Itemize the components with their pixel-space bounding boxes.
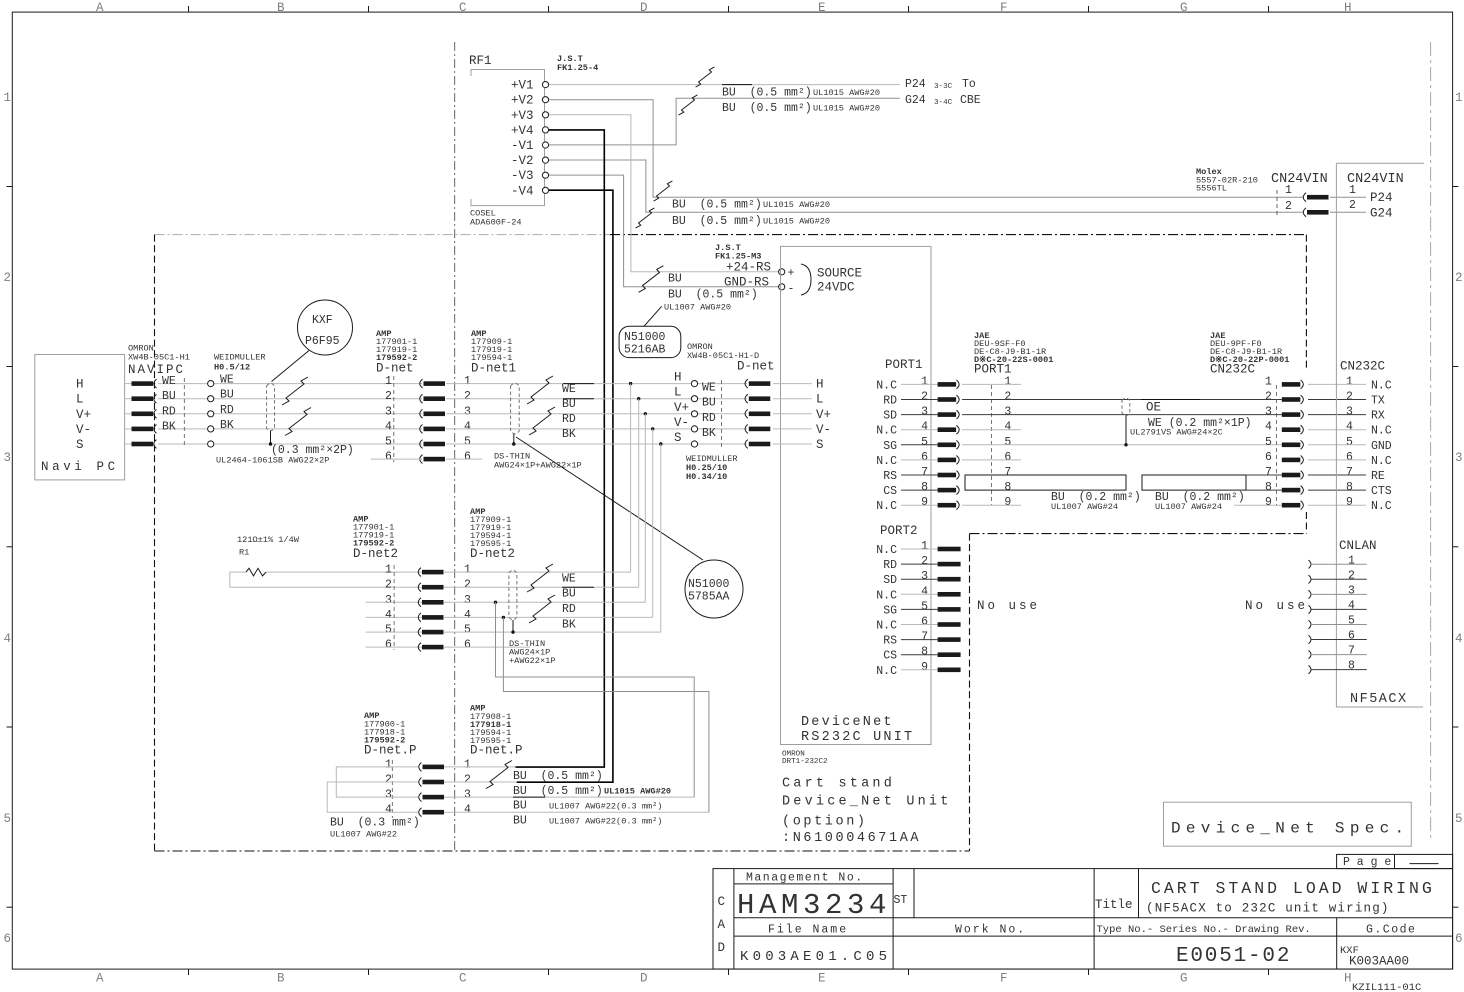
svg-text:BU (0.5 mm²): BU (0.5 mm²) bbox=[722, 102, 812, 115]
svg-text:5: 5 bbox=[464, 624, 471, 637]
svg-text:1: 1 bbox=[921, 540, 928, 553]
svg-text:3: 3 bbox=[464, 405, 471, 418]
svg-text:N.C: N.C bbox=[876, 665, 897, 678]
svg-text:1: 1 bbox=[1346, 375, 1353, 388]
svg-text:N.C: N.C bbox=[876, 379, 897, 392]
svg-text:5: 5 bbox=[1004, 436, 1011, 449]
svg-text:4: 4 bbox=[921, 421, 928, 434]
svg-text:6: 6 bbox=[921, 451, 928, 464]
svg-text:N.C: N.C bbox=[876, 620, 897, 633]
svg-text:Device_Net Unit: Device_Net Unit bbox=[782, 795, 952, 810]
svg-text:BU (0.5 mm²): BU (0.5 mm²) bbox=[672, 199, 762, 212]
svg-text:1: 1 bbox=[4, 91, 12, 105]
svg-text:N.C: N.C bbox=[1371, 455, 1392, 468]
svg-text:6: 6 bbox=[1455, 932, 1463, 946]
svg-text:UL1007 AWG#22: UL1007 AWG#22 bbox=[330, 830, 397, 840]
svg-text:L: L bbox=[816, 393, 824, 407]
svg-text:(option): (option) bbox=[782, 815, 868, 830]
svg-text:DeviceNet: DeviceNet bbox=[801, 715, 894, 730]
svg-text:(NF5ACX to 232C unit wiring): (NF5ACX to 232C unit wiring) bbox=[1146, 902, 1390, 916]
svg-text:D: D bbox=[640, 1, 648, 15]
svg-text:1: 1 bbox=[385, 758, 392, 771]
svg-text:3: 3 bbox=[4, 451, 12, 465]
svg-text:+V4: +V4 bbox=[511, 124, 534, 138]
svg-text:V+: V+ bbox=[674, 401, 689, 415]
svg-text:E: E bbox=[818, 1, 826, 15]
svg-text:4: 4 bbox=[1455, 632, 1463, 646]
svg-text:1: 1 bbox=[1349, 184, 1356, 197]
svg-text:UL1015 AWG#20: UL1015 AWG#20 bbox=[813, 88, 880, 98]
svg-text:6: 6 bbox=[464, 639, 471, 652]
svg-text:SOURCE: SOURCE bbox=[817, 267, 862, 281]
svg-text:A: A bbox=[96, 972, 104, 986]
svg-text:2: 2 bbox=[464, 774, 471, 787]
svg-text:WE: WE bbox=[562, 573, 576, 586]
svg-text:1: 1 bbox=[385, 564, 392, 577]
svg-text:4: 4 bbox=[1004, 421, 1011, 434]
svg-text:V-: V- bbox=[816, 423, 831, 437]
svg-text:5556TL: 5556TL bbox=[1196, 184, 1227, 194]
svg-text:2: 2 bbox=[385, 579, 392, 592]
svg-text:C: C bbox=[459, 972, 467, 986]
svg-text:2: 2 bbox=[921, 555, 928, 568]
svg-text:N.C: N.C bbox=[876, 500, 897, 513]
svg-text:WE: WE bbox=[562, 383, 576, 396]
svg-text:7: 7 bbox=[1348, 645, 1355, 658]
svg-text:BU: BU bbox=[702, 397, 716, 410]
svg-text:L: L bbox=[76, 393, 84, 407]
svg-text:N.C: N.C bbox=[876, 455, 897, 468]
svg-text:8: 8 bbox=[921, 646, 928, 659]
svg-text:2: 2 bbox=[385, 390, 392, 403]
svg-text:BU: BU bbox=[162, 390, 176, 403]
svg-text:CART STAND LOAD WIRING: CART STAND LOAD WIRING bbox=[1151, 879, 1435, 898]
svg-text:6: 6 bbox=[464, 451, 471, 464]
svg-text:Navi PC: Navi PC bbox=[41, 460, 119, 474]
svg-text:CNLAN: CNLAN bbox=[1339, 539, 1377, 553]
svg-text:RS: RS bbox=[883, 470, 897, 483]
svg-text:CN232C: CN232C bbox=[1340, 360, 1385, 374]
svg-text:UL2791VS AWG#24×2C: UL2791VS AWG#24×2C bbox=[1130, 428, 1223, 438]
svg-text:D: D bbox=[640, 972, 648, 986]
svg-text:WE: WE bbox=[702, 382, 716, 395]
svg-text:A: A bbox=[718, 918, 726, 932]
svg-text:NF5ACX: NF5ACX bbox=[1350, 692, 1408, 707]
svg-text:-V3: -V3 bbox=[511, 169, 534, 183]
svg-text:L: L bbox=[674, 386, 682, 400]
svg-text:2: 2 bbox=[464, 390, 471, 403]
svg-text:-V4: -V4 bbox=[511, 184, 534, 198]
svg-text:N51000: N51000 bbox=[688, 578, 730, 591]
svg-text:To: To bbox=[962, 78, 976, 91]
svg-text:3: 3 bbox=[1265, 406, 1272, 419]
svg-text:9: 9 bbox=[921, 661, 928, 674]
svg-text:1: 1 bbox=[1004, 375, 1011, 388]
svg-text:BU (0.5 mm²): BU (0.5 mm²) bbox=[513, 785, 603, 798]
svg-text:9: 9 bbox=[921, 496, 928, 509]
svg-text:6: 6 bbox=[1346, 451, 1353, 464]
svg-text:RD: RD bbox=[883, 395, 897, 408]
svg-text:SD: SD bbox=[883, 574, 897, 587]
svg-text:BK: BK bbox=[220, 419, 234, 432]
svg-text:E0051-02: E0051-02 bbox=[1176, 945, 1291, 968]
svg-text:UL1015 AWG#20: UL1015 AWG#20 bbox=[813, 104, 880, 114]
svg-text:6: 6 bbox=[4, 932, 12, 946]
svg-text:1: 1 bbox=[1455, 91, 1463, 105]
svg-text:5: 5 bbox=[921, 600, 928, 613]
svg-text:H0.34/10: H0.34/10 bbox=[686, 472, 727, 482]
svg-text:+V1: +V1 bbox=[511, 79, 534, 93]
svg-text:8: 8 bbox=[1265, 481, 1272, 494]
svg-text:S: S bbox=[816, 438, 824, 452]
svg-text:D-net.P: D-net.P bbox=[470, 744, 523, 758]
svg-text:G: G bbox=[1180, 972, 1188, 986]
svg-text:RX: RX bbox=[1371, 410, 1385, 423]
svg-text:5: 5 bbox=[1348, 615, 1355, 628]
svg-text:Device_Net Spec.: Device_Net Spec. bbox=[1171, 820, 1409, 838]
svg-text:121Ω±1% 1/4W: 121Ω±1% 1/4W bbox=[237, 535, 300, 545]
svg-text:7: 7 bbox=[1265, 466, 1272, 479]
svg-text:5: 5 bbox=[385, 436, 392, 449]
svg-text:7: 7 bbox=[1004, 466, 1011, 479]
svg-text:F: F bbox=[1000, 1, 1008, 15]
svg-text:BK: BK bbox=[702, 427, 716, 440]
svg-text:2: 2 bbox=[1455, 271, 1463, 285]
svg-text:6: 6 bbox=[1265, 451, 1272, 464]
svg-text:C: C bbox=[718, 895, 726, 909]
svg-text:UL1007 AWG#22(0.3 mm²): UL1007 AWG#22(0.3 mm²) bbox=[549, 817, 662, 827]
svg-text:1: 1 bbox=[1265, 375, 1272, 388]
svg-text:G24: G24 bbox=[1370, 207, 1393, 221]
svg-text:5216AB: 5216AB bbox=[624, 344, 666, 357]
svg-text:3: 3 bbox=[1346, 406, 1353, 419]
svg-text:E: E bbox=[818, 972, 826, 986]
svg-text:BU: BU bbox=[513, 800, 527, 813]
svg-text:RD: RD bbox=[883, 559, 897, 572]
svg-text:2: 2 bbox=[464, 579, 471, 592]
svg-text:1: 1 bbox=[385, 375, 392, 388]
svg-text:3: 3 bbox=[385, 594, 392, 607]
svg-text:2: 2 bbox=[385, 774, 392, 787]
svg-text:RD: RD bbox=[220, 404, 234, 417]
svg-text:3-3C: 3-3C bbox=[934, 83, 953, 91]
svg-text:4: 4 bbox=[385, 609, 392, 622]
svg-text:Title: Title bbox=[1095, 898, 1133, 912]
svg-text:Management No.: Management No. bbox=[746, 872, 864, 885]
svg-text:N.C: N.C bbox=[876, 544, 897, 557]
svg-text:BU: BU bbox=[220, 389, 234, 402]
svg-text:D-net2: D-net2 bbox=[353, 547, 398, 561]
svg-text:P a g e: P a g e bbox=[1343, 856, 1391, 869]
svg-text:CS: CS bbox=[883, 485, 897, 498]
svg-text:BK: BK bbox=[562, 619, 576, 632]
svg-text:N51000: N51000 bbox=[624, 331, 666, 344]
svg-text:+V2: +V2 bbox=[511, 94, 534, 108]
svg-text:BU (0.3 mm²): BU (0.3 mm²) bbox=[330, 817, 420, 830]
svg-text:FK1.25-4: FK1.25-4 bbox=[557, 63, 598, 73]
svg-text:+24-RS: +24-RS bbox=[726, 261, 771, 275]
svg-text:ST: ST bbox=[894, 894, 908, 907]
svg-text:UL1007 AWG#22(0.3 mm²): UL1007 AWG#22(0.3 mm²) bbox=[549, 802, 662, 812]
svg-text:H: H bbox=[1344, 972, 1352, 986]
svg-text:24VDC: 24VDC bbox=[817, 281, 855, 295]
svg-text:ADA600F-24: ADA600F-24 bbox=[470, 218, 522, 228]
svg-text:UL1015 AWG#20: UL1015 AWG#20 bbox=[604, 786, 671, 796]
svg-text:3: 3 bbox=[385, 789, 392, 802]
svg-text:3: 3 bbox=[385, 405, 392, 418]
svg-text:RD: RD bbox=[562, 413, 576, 426]
svg-text:D-net1: D-net1 bbox=[471, 362, 516, 376]
svg-text:1: 1 bbox=[921, 375, 928, 388]
svg-text:N.C: N.C bbox=[1371, 500, 1392, 513]
svg-text:RF1: RF1 bbox=[469, 54, 492, 68]
svg-text:1: 1 bbox=[1348, 554, 1355, 567]
svg-text:WE: WE bbox=[162, 375, 176, 388]
svg-text:BU: BU bbox=[562, 398, 576, 411]
svg-text:Cart stand: Cart stand bbox=[782, 777, 895, 792]
svg-text:4: 4 bbox=[385, 420, 392, 433]
svg-text:6: 6 bbox=[921, 616, 928, 629]
svg-text:OE: OE bbox=[1146, 401, 1161, 415]
svg-text:6: 6 bbox=[1004, 451, 1011, 464]
svg-text:8: 8 bbox=[1004, 481, 1011, 494]
svg-text:K003AE01.C05: K003AE01.C05 bbox=[740, 949, 891, 965]
svg-text:D-net.P: D-net.P bbox=[364, 744, 417, 758]
svg-text:PORT1: PORT1 bbox=[974, 363, 1012, 377]
svg-text:2: 2 bbox=[1349, 199, 1356, 212]
svg-text:7: 7 bbox=[1346, 466, 1353, 479]
svg-text:H: H bbox=[1344, 1, 1352, 15]
svg-text:No use: No use bbox=[1245, 599, 1308, 613]
svg-text:BU (0.5 mm²): BU (0.5 mm²) bbox=[513, 770, 603, 783]
svg-text:Work No.: Work No. bbox=[955, 924, 1026, 937]
svg-text:BU (0.5 mm²): BU (0.5 mm²) bbox=[722, 87, 812, 100]
svg-text:CN24VIN: CN24VIN bbox=[1271, 172, 1328, 187]
svg-text:Type No.- Series No.- Drawing: Type No.- Series No.- Drawing Rev. bbox=[1097, 924, 1311, 936]
svg-text:WEIDMULLER: WEIDMULLER bbox=[214, 353, 266, 363]
svg-text:D-net2: D-net2 bbox=[470, 547, 515, 561]
svg-text:H: H bbox=[674, 371, 682, 385]
svg-text:2: 2 bbox=[1265, 391, 1272, 404]
svg-text:2: 2 bbox=[1004, 391, 1011, 404]
svg-text:5785AA: 5785AA bbox=[688, 591, 730, 604]
svg-text:NAVIPC: NAVIPC bbox=[128, 363, 185, 377]
svg-text:1: 1 bbox=[464, 758, 471, 771]
svg-text:UL1015 AWG#20: UL1015 AWG#20 bbox=[763, 200, 830, 210]
svg-text:V-: V- bbox=[76, 423, 91, 437]
svg-text:6: 6 bbox=[1348, 630, 1355, 643]
svg-text:GND-RS: GND-RS bbox=[724, 276, 769, 290]
svg-text:H: H bbox=[816, 378, 824, 392]
svg-text:4: 4 bbox=[4, 632, 12, 646]
svg-text:RD: RD bbox=[162, 405, 176, 418]
svg-text:H0.5/12: H0.5/12 bbox=[214, 363, 250, 373]
svg-text:SD: SD bbox=[883, 410, 897, 423]
svg-text:3: 3 bbox=[1455, 451, 1463, 465]
svg-text:2: 2 bbox=[1285, 200, 1292, 213]
svg-text:6: 6 bbox=[385, 451, 392, 464]
svg-text:N.C: N.C bbox=[876, 425, 897, 438]
svg-text:3: 3 bbox=[464, 594, 471, 607]
svg-text:9: 9 bbox=[1346, 496, 1353, 509]
svg-text:3: 3 bbox=[1348, 584, 1355, 597]
svg-text:P24: P24 bbox=[905, 78, 926, 91]
svg-text:UL1007 AWG#20: UL1007 AWG#20 bbox=[664, 303, 731, 313]
svg-text:B: B bbox=[277, 1, 285, 15]
svg-text:9: 9 bbox=[1004, 496, 1011, 509]
svg-text:-V2: -V2 bbox=[511, 154, 534, 168]
svg-text:+: + bbox=[788, 267, 795, 280]
svg-text:BU: BU bbox=[668, 273, 682, 286]
svg-text:SG: SG bbox=[883, 440, 897, 453]
svg-text:XW4B-05C1-H1: XW4B-05C1-H1 bbox=[128, 353, 190, 363]
svg-text:V+: V+ bbox=[816, 408, 831, 422]
svg-text:5: 5 bbox=[1455, 812, 1463, 826]
svg-text:RS: RS bbox=[883, 635, 897, 648]
svg-text:7: 7 bbox=[921, 631, 928, 644]
svg-text:V-: V- bbox=[674, 416, 689, 430]
svg-text:1: 1 bbox=[1285, 184, 1292, 197]
svg-text:5: 5 bbox=[1346, 436, 1353, 449]
svg-text:6: 6 bbox=[385, 639, 392, 652]
svg-text:A: A bbox=[96, 1, 104, 15]
svg-text:BK: BK bbox=[562, 428, 576, 441]
svg-text:UL1015 AWG#20: UL1015 AWG#20 bbox=[763, 217, 830, 227]
svg-text:CS: CS bbox=[883, 650, 897, 663]
svg-text:R1: R1 bbox=[239, 548, 249, 558]
svg-text:File Name: File Name bbox=[768, 924, 848, 937]
svg-text::N610004671AA: :N610004671AA bbox=[782, 831, 921, 846]
svg-text:BU (0.5 mm²): BU (0.5 mm²) bbox=[672, 215, 762, 228]
svg-text:G24: G24 bbox=[905, 94, 926, 107]
svg-text:CTS: CTS bbox=[1371, 485, 1392, 498]
svg-text:N.C: N.C bbox=[876, 589, 897, 602]
svg-text:8: 8 bbox=[1348, 660, 1355, 673]
svg-text:WE: WE bbox=[220, 374, 234, 387]
svg-text:+V3: +V3 bbox=[511, 109, 534, 123]
svg-text:3: 3 bbox=[464, 789, 471, 802]
svg-text:CBE: CBE bbox=[960, 94, 981, 107]
svg-text:5: 5 bbox=[385, 624, 392, 637]
svg-text:4: 4 bbox=[464, 420, 471, 433]
svg-text:5: 5 bbox=[4, 812, 12, 826]
svg-text:2: 2 bbox=[1346, 391, 1353, 404]
svg-text:H: H bbox=[76, 378, 84, 392]
svg-text:UL1007 AWG#24: UL1007 AWG#24 bbox=[1051, 502, 1118, 512]
svg-text:V+: V+ bbox=[76, 408, 91, 422]
svg-text:G: G bbox=[1180, 1, 1188, 15]
svg-text:5: 5 bbox=[464, 436, 471, 449]
svg-text:2: 2 bbox=[4, 271, 12, 285]
svg-text:1: 1 bbox=[464, 564, 471, 577]
svg-text:S: S bbox=[674, 431, 682, 445]
svg-text:RE: RE bbox=[1371, 470, 1385, 483]
svg-text:4: 4 bbox=[464, 609, 471, 622]
svg-text:9: 9 bbox=[1265, 496, 1272, 509]
svg-text:4: 4 bbox=[385, 804, 392, 817]
svg-text:3: 3 bbox=[1004, 406, 1011, 419]
svg-text:TX: TX bbox=[1371, 395, 1385, 408]
svg-text:D: D bbox=[718, 941, 726, 955]
svg-text:D-net: D-net bbox=[737, 360, 775, 374]
svg-text:BU: BU bbox=[513, 815, 527, 828]
svg-text:K003AA00: K003AA00 bbox=[1349, 955, 1409, 969]
svg-text:HAM3234: HAM3234 bbox=[737, 889, 891, 922]
svg-text:-V1: -V1 bbox=[511, 139, 534, 153]
svg-text:PORT2: PORT2 bbox=[880, 524, 918, 538]
svg-text:D-net: D-net bbox=[376, 362, 414, 376]
svg-text:4: 4 bbox=[1265, 421, 1272, 434]
svg-text:B: B bbox=[277, 972, 285, 986]
svg-text:8: 8 bbox=[921, 481, 928, 494]
svg-text:UL1007 AWG#24: UL1007 AWG#24 bbox=[1155, 502, 1222, 512]
svg-text:-: - bbox=[788, 283, 795, 296]
svg-text:RD: RD bbox=[562, 603, 576, 616]
svg-text:C: C bbox=[459, 1, 467, 15]
svg-text:GND: GND bbox=[1371, 440, 1392, 453]
svg-text:4: 4 bbox=[921, 585, 928, 598]
svg-text:P6F95: P6F95 bbox=[305, 335, 340, 348]
svg-text:BU (0.5 mm²): BU (0.5 mm²) bbox=[668, 289, 758, 302]
svg-text:SG: SG bbox=[883, 604, 897, 617]
svg-text:N.C: N.C bbox=[1371, 379, 1392, 392]
svg-text:G.Code: G.Code bbox=[1366, 924, 1416, 937]
svg-text:KXF: KXF bbox=[312, 314, 333, 327]
svg-text:PORT1: PORT1 bbox=[885, 358, 923, 372]
svg-text:RD: RD bbox=[702, 412, 716, 425]
svg-text:DRT1-232C2: DRT1-232C2 bbox=[782, 758, 828, 766]
svg-text:AWG24×1P+AWG22×1P: AWG24×1P+AWG22×1P bbox=[494, 461, 582, 471]
svg-text:2: 2 bbox=[921, 391, 928, 404]
svg-text:BK: BK bbox=[162, 420, 176, 433]
svg-text:CN232C: CN232C bbox=[1210, 363, 1255, 377]
svg-text:UL2464-1061SB AWG22×2P: UL2464-1061SB AWG22×2P bbox=[216, 456, 329, 466]
svg-text:5: 5 bbox=[921, 436, 928, 449]
svg-text:7: 7 bbox=[921, 466, 928, 479]
svg-text:RS232C UNIT: RS232C UNIT bbox=[801, 730, 914, 745]
svg-text:P24: P24 bbox=[1370, 191, 1393, 205]
svg-text:4: 4 bbox=[464, 804, 471, 817]
svg-text:S: S bbox=[76, 438, 84, 452]
svg-text:8: 8 bbox=[1346, 481, 1353, 494]
svg-text:BU: BU bbox=[562, 588, 576, 601]
svg-text:No use: No use bbox=[977, 599, 1040, 613]
svg-text:KZIL111-01C: KZIL111-01C bbox=[1352, 982, 1421, 992]
svg-text:2: 2 bbox=[1348, 569, 1355, 582]
svg-text:4: 4 bbox=[1348, 599, 1355, 612]
svg-text:F: F bbox=[1000, 972, 1008, 986]
svg-text:5: 5 bbox=[1265, 436, 1272, 449]
svg-text:N.C: N.C bbox=[1371, 425, 1392, 438]
svg-text:1: 1 bbox=[464, 375, 471, 388]
svg-text:+AWG22×1P: +AWG22×1P bbox=[509, 656, 555, 666]
svg-text:3: 3 bbox=[921, 570, 928, 583]
svg-text:4: 4 bbox=[1346, 421, 1353, 434]
svg-text:3-4C: 3-4C bbox=[934, 99, 953, 107]
svg-text:3: 3 bbox=[921, 406, 928, 419]
